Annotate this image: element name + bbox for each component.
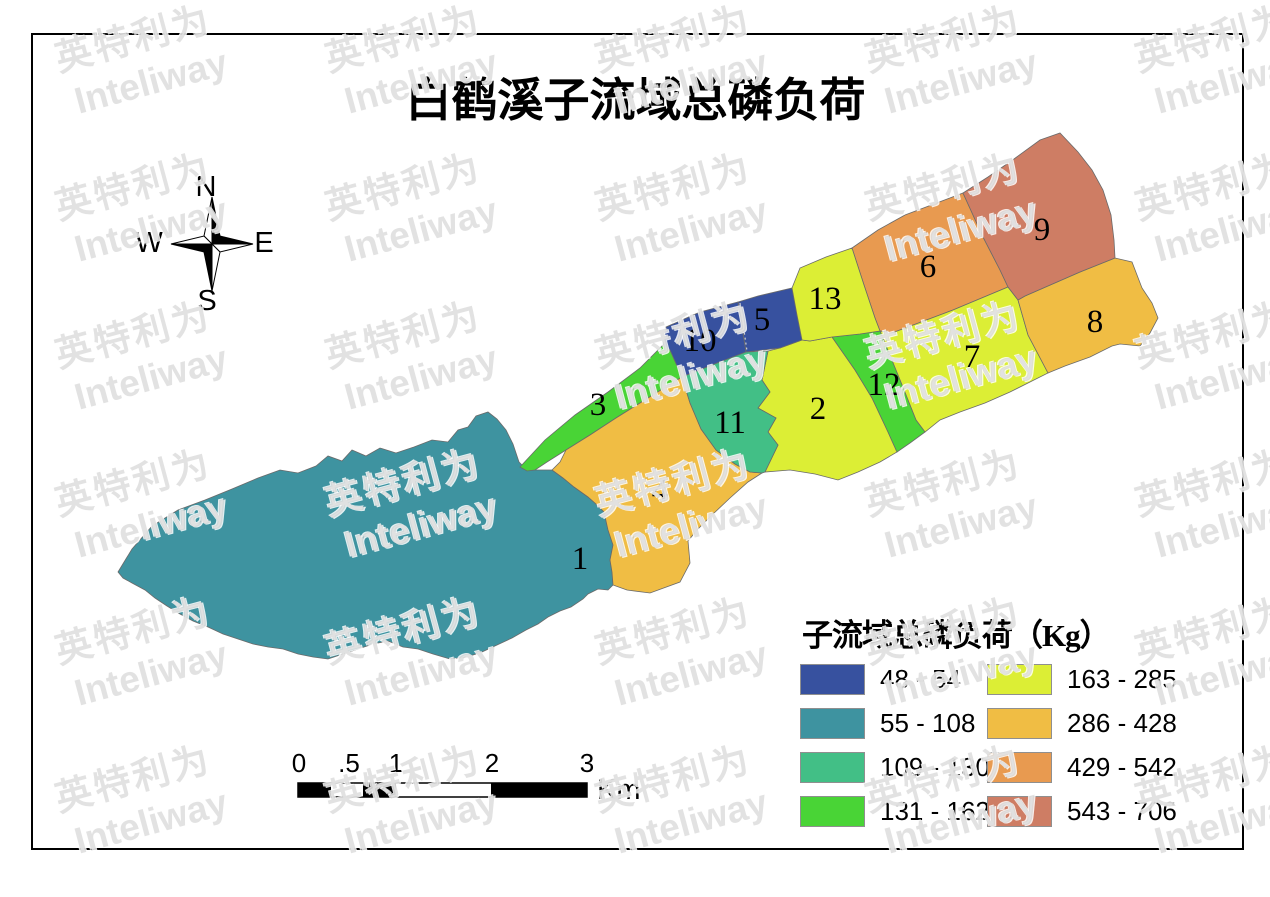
zone-label-11: 11 bbox=[714, 405, 746, 441]
zone-label-4: 4 bbox=[652, 473, 669, 509]
compass-star-arm-6 bbox=[171, 244, 212, 252]
scalebar-unit: Km bbox=[597, 774, 641, 806]
legend-label-4: 163 - 285 bbox=[1067, 664, 1177, 695]
legend-swatch-7 bbox=[987, 796, 1052, 827]
scalebar-segment bbox=[491, 783, 587, 797]
legend-swatch-4 bbox=[987, 664, 1052, 695]
legend-title: 子流域总磷负荷（Kg） bbox=[802, 610, 1110, 655]
zone-label-13: 13 bbox=[809, 281, 842, 317]
legend-swatch-2 bbox=[800, 752, 865, 783]
zone-label-5: 5 bbox=[754, 302, 771, 338]
map-document: 12345678910111213NSWE0.5123Km 白鹤溪子流域总磷负荷… bbox=[0, 0, 1270, 897]
map-title: 白鹤溪子流域总磷负荷 bbox=[31, 64, 1240, 130]
scalebar-tick-1: .5 bbox=[338, 748, 360, 778]
legend-label-2: 109 - 130 bbox=[880, 752, 990, 783]
scalebar-tick-4: 3 bbox=[580, 748, 594, 778]
scalebar-tick-3: 2 bbox=[485, 748, 499, 778]
compass-south-label: S bbox=[197, 285, 216, 317]
zone-label-6: 6 bbox=[920, 249, 937, 285]
compass-north-label: N bbox=[196, 171, 217, 203]
zone-label-7: 7 bbox=[964, 339, 981, 375]
legend-swatch-0 bbox=[800, 664, 865, 695]
legend-label-6: 429 - 542 bbox=[1067, 752, 1177, 783]
zone-label-8: 8 bbox=[1087, 304, 1104, 340]
zone-label-3: 3 bbox=[590, 387, 607, 423]
legend-swatch-3 bbox=[800, 796, 865, 827]
zone-label-10: 10 bbox=[684, 323, 717, 359]
zone-label-12: 12 bbox=[868, 367, 901, 403]
compass-star-arm-4 bbox=[212, 244, 220, 291]
compass-star-arm-7 bbox=[171, 236, 212, 244]
legend-label-1: 55 - 108 bbox=[880, 708, 975, 739]
zone-label-2: 2 bbox=[810, 391, 827, 427]
legend-label-0: 48 - 54 bbox=[880, 664, 961, 695]
legend-swatch-1 bbox=[800, 708, 865, 739]
legend-label-3: 131 - 162 bbox=[880, 796, 990, 827]
compass-star-arm-2 bbox=[212, 236, 253, 244]
scalebar-tick-0: 0 bbox=[292, 748, 306, 778]
legend-swatch-6 bbox=[987, 752, 1052, 783]
zone-label-9: 9 bbox=[1034, 212, 1051, 248]
compass-east-label: E bbox=[254, 227, 273, 259]
scalebar-segment bbox=[298, 783, 331, 797]
zone-label-1: 1 bbox=[572, 541, 589, 577]
scalebar-segment bbox=[363, 783, 396, 797]
legend-label-7: 543 - 706 bbox=[1067, 796, 1177, 827]
legend-label-5: 286 - 428 bbox=[1067, 708, 1177, 739]
legend-swatch-5 bbox=[987, 708, 1052, 739]
scalebar-tick-2: 1 bbox=[389, 748, 403, 778]
compass-west-label: W bbox=[135, 227, 163, 259]
